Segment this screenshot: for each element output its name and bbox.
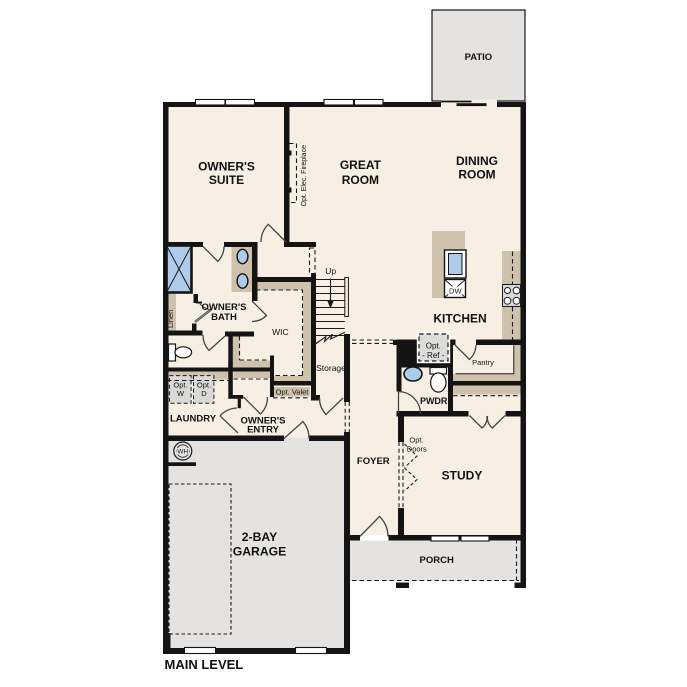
svg-text:PATIO: PATIO [465,52,493,63]
svg-text:DINING: DINING [456,154,498,168]
svg-text:SUITE: SUITE [209,173,244,187]
svg-text:DW: DW [449,287,462,296]
svg-text:GARAGE: GARAGE [233,544,287,558]
svg-text:Opt.: Opt. [409,436,423,445]
svg-text:2-BAY: 2-BAY [242,530,277,544]
svg-text:Storage: Storage [316,363,346,373]
svg-text:WIC: WIC [272,327,289,337]
svg-text:ENTRY: ENTRY [247,425,280,436]
svg-text:Doors: Doors [407,445,427,454]
svg-text:Opt.: Opt. [426,342,441,351]
svg-text:LAUNDRY: LAUNDRY [170,413,217,424]
svg-text:BATH: BATH [211,312,237,323]
svg-text:Pantry: Pantry [472,358,494,367]
svg-text:MAIN LEVEL: MAIN LEVEL [165,657,244,672]
svg-text:ROOM: ROOM [458,168,495,182]
svg-text:W: W [177,389,185,398]
svg-text:KITCHEN: KITCHEN [433,312,486,326]
svg-text:- Ref -: - Ref - [422,351,445,360]
svg-text:FOYER: FOYER [357,456,390,467]
svg-text:Linen: Linen [166,310,175,328]
svg-text:Opt. Elec. Fireplace: Opt. Elec. Fireplace [301,145,308,207]
svg-text:Opt. Valet: Opt. Valet [276,387,310,396]
svg-text:PORCH: PORCH [420,555,454,566]
svg-text:D: D [201,389,207,398]
svg-text:OWNER'S: OWNER'S [198,160,255,174]
svg-text:ROOM: ROOM [342,173,379,187]
svg-text:Up: Up [325,266,336,276]
svg-text:WH: WH [177,449,188,456]
svg-text:PWDR: PWDR [420,396,448,406]
svg-text:GREAT: GREAT [340,158,382,172]
svg-text:STUDY: STUDY [442,469,483,483]
